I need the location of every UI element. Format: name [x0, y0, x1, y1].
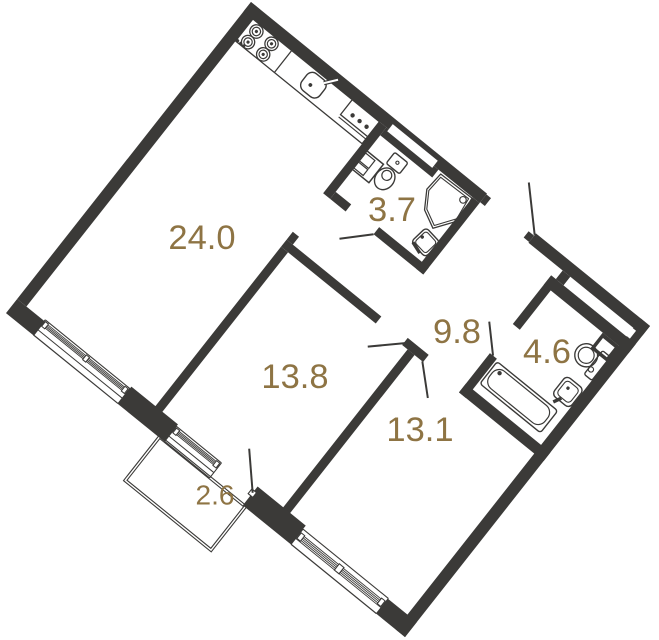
- svg-text:4.6: 4.6: [523, 333, 571, 371]
- svg-text:13.8: 13.8: [261, 358, 328, 396]
- svg-text:13.1: 13.1: [386, 411, 453, 449]
- svg-text:2.6: 2.6: [196, 480, 235, 511]
- svg-text:9.8: 9.8: [433, 313, 481, 351]
- svg-text:3.7: 3.7: [368, 191, 416, 229]
- svg-text:24.0: 24.0: [168, 219, 235, 257]
